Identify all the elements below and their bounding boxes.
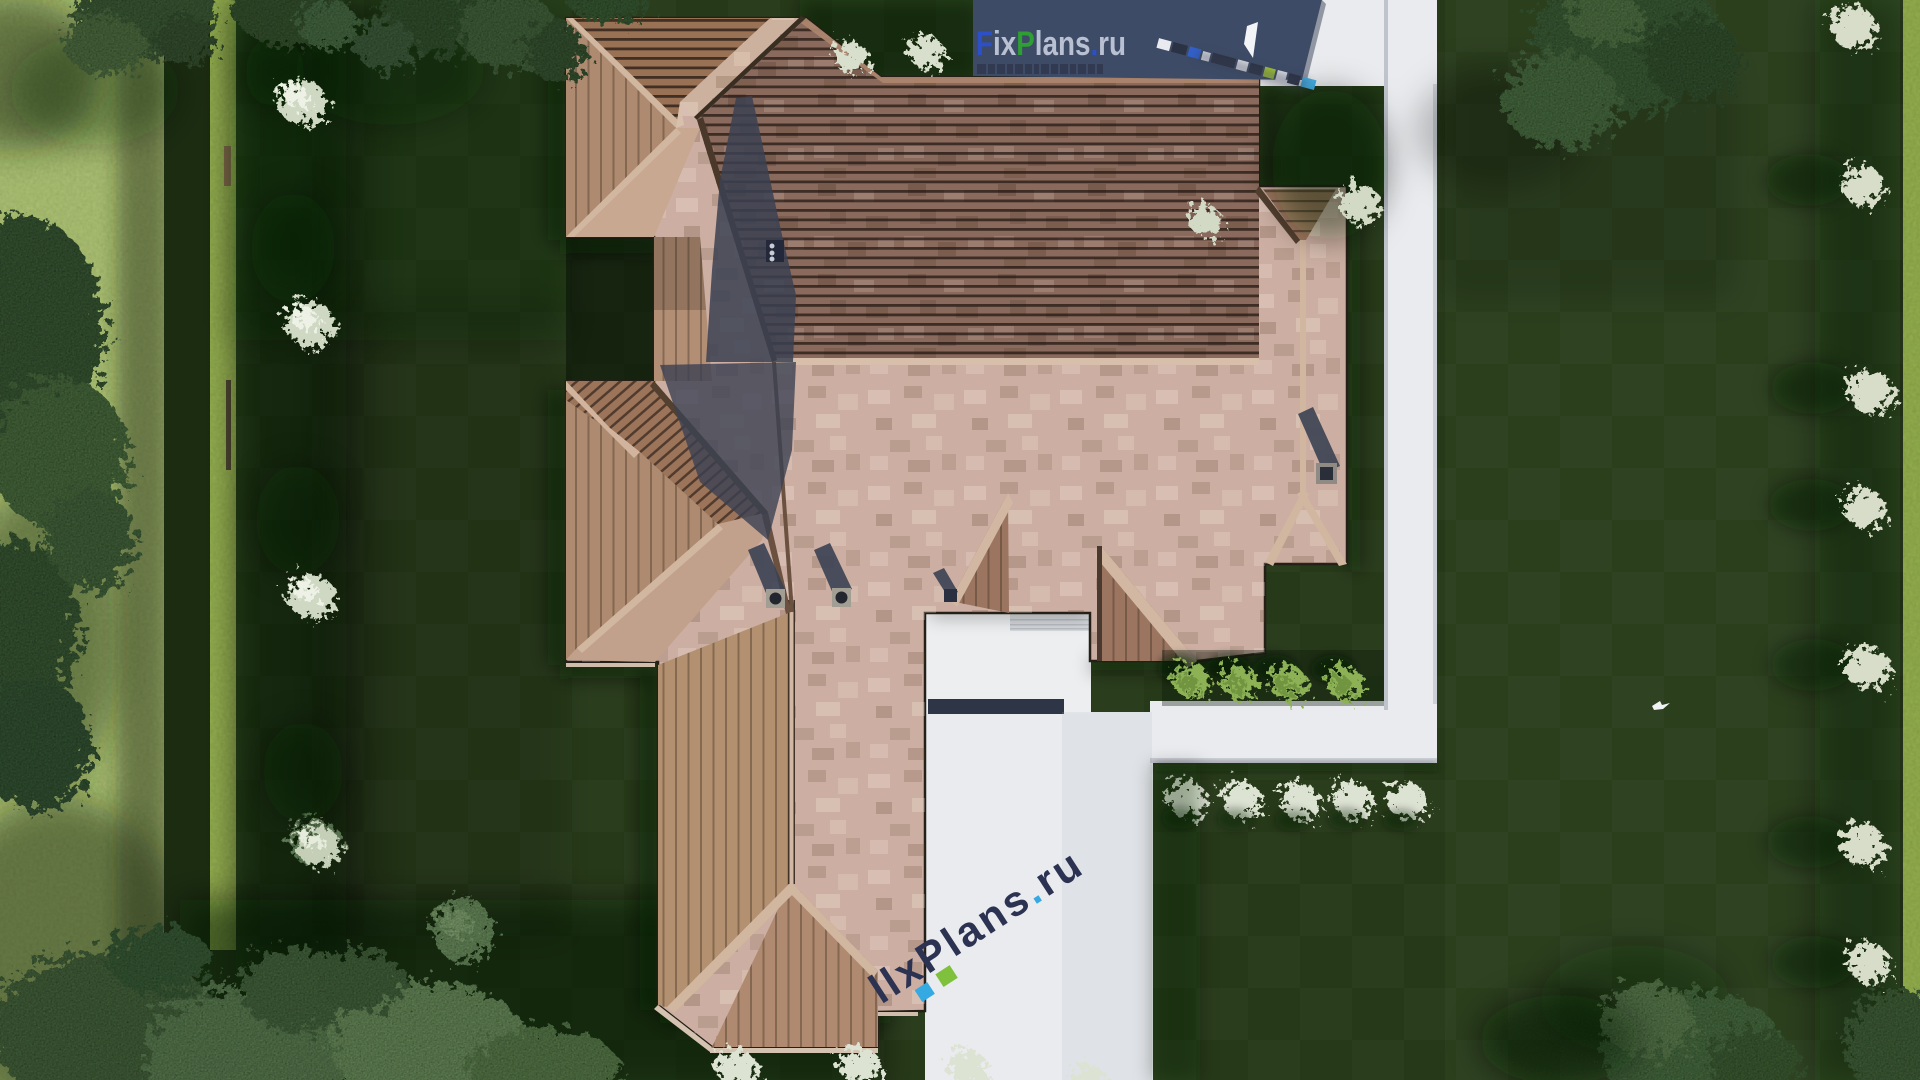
svg-text:FixPlans.ru: FixPlans.ru [976,25,1126,63]
